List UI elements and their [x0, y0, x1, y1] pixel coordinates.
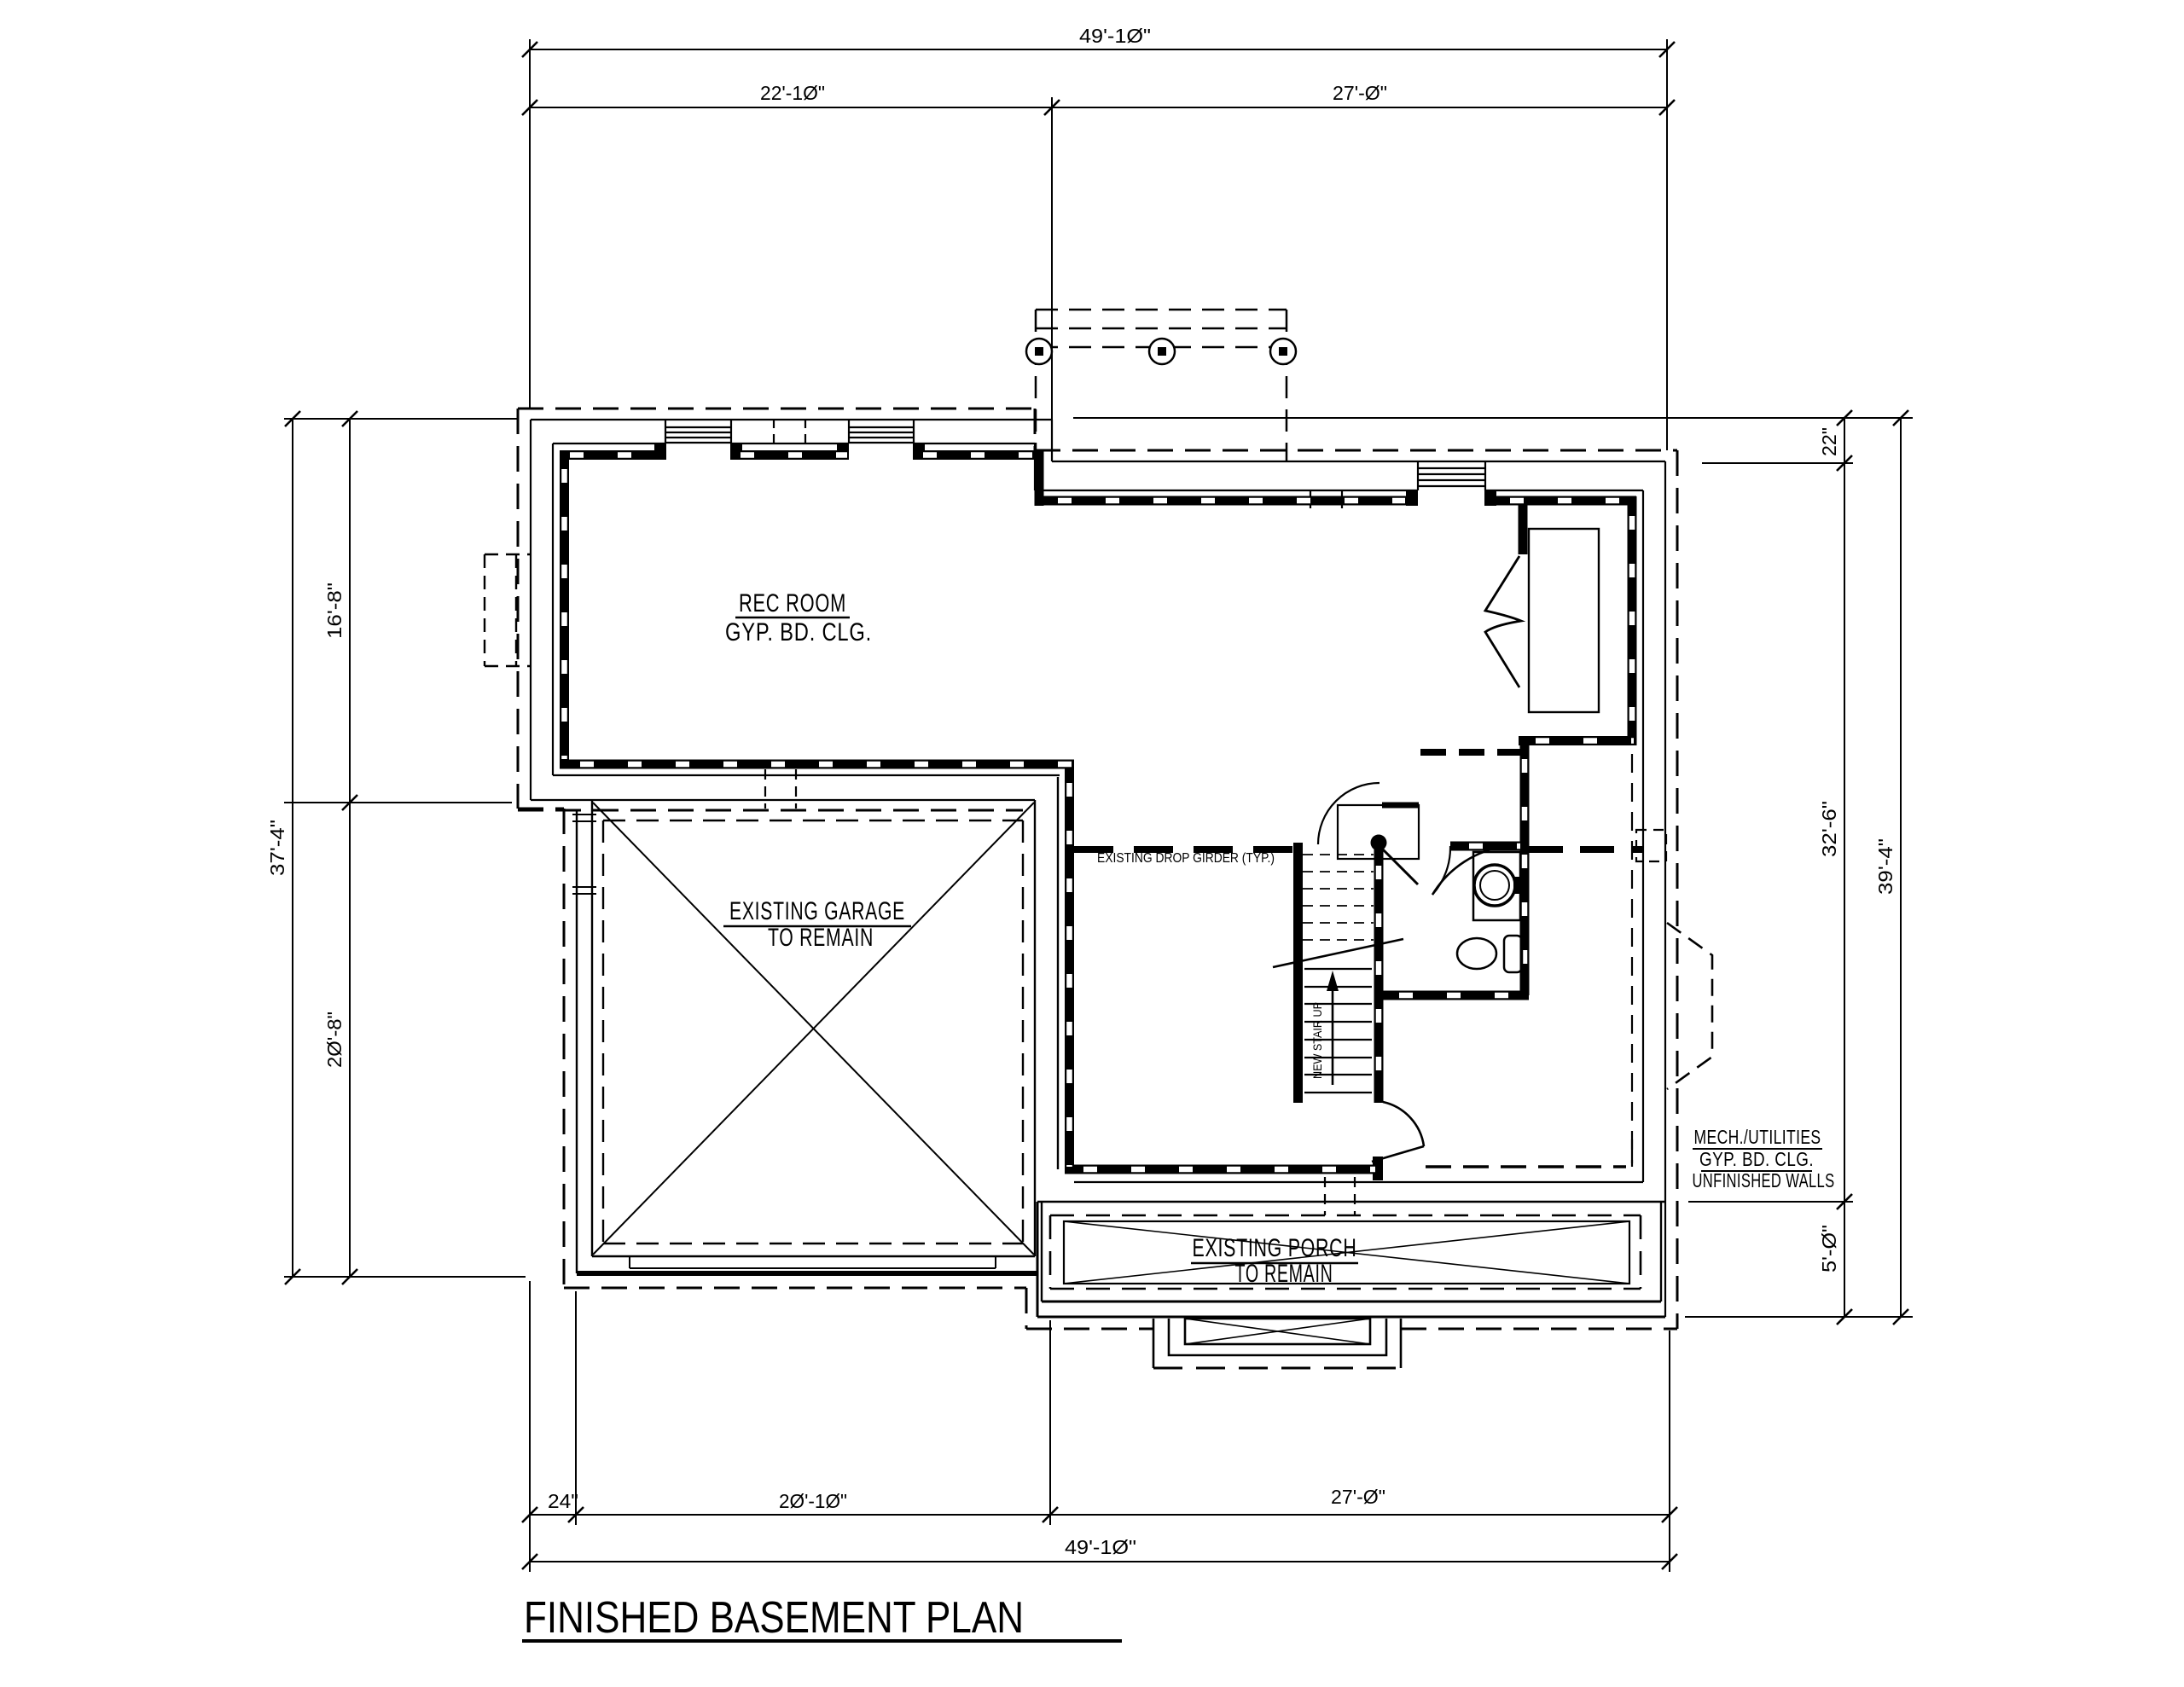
svg-text:49'-1Ø": 49'-1Ø" [1079, 25, 1151, 47]
svg-text:27'-Ø": 27'-Ø" [1333, 82, 1387, 104]
svg-text:2Ø'-8": 2Ø'-8" [323, 1012, 346, 1068]
svg-text:49'-1Ø": 49'-1Ø" [1065, 1536, 1136, 1558]
svg-text:16'-8": 16'-8" [323, 583, 346, 639]
svg-text:EXISTING DROP GIRDER (TYP.): EXISTING DROP GIRDER (TYP.) [1097, 851, 1275, 866]
svg-text:27'-Ø": 27'-Ø" [1331, 1486, 1385, 1508]
svg-text:NEW STAIR UP: NEW STAIR UP [1310, 1002, 1324, 1079]
svg-text:UNFINISHED WALLS: UNFINISHED WALLS [1693, 1169, 1835, 1191]
svg-text:TO REMAIN: TO REMAIN [768, 924, 874, 952]
svg-text:22": 22" [1818, 427, 1840, 456]
svg-text:39'-4": 39'-4" [1874, 838, 1896, 895]
svg-text:5'-Ø": 5'-Ø" [1818, 1225, 1840, 1272]
svg-text:37'-4": 37'-4" [266, 820, 288, 876]
svg-text:MECH./UTILITIES: MECH./UTILITIES [1694, 1126, 1821, 1148]
svg-text:EXISTING GARAGE: EXISTING GARAGE [729, 897, 905, 925]
svg-text:REC ROOM: REC ROOM [739, 589, 846, 617]
svg-text:24": 24" [548, 1490, 578, 1512]
svg-text:2Ø'-1Ø": 2Ø'-1Ø" [779, 1490, 847, 1512]
svg-text:GYP. BD. CLG.: GYP. BD. CLG. [725, 618, 872, 646]
svg-text:22'-1Ø": 22'-1Ø" [760, 82, 825, 104]
svg-text:32'-6": 32'-6" [1818, 801, 1840, 857]
svg-text:EXISTING PORCH: EXISTING PORCH [1193, 1234, 1357, 1262]
svg-text:GYP. BD. CLG.: GYP. BD. CLG. [1699, 1148, 1814, 1170]
svg-text:FINISHED BASEMENT PLAN: FINISHED BASEMENT PLAN [524, 1593, 1024, 1643]
